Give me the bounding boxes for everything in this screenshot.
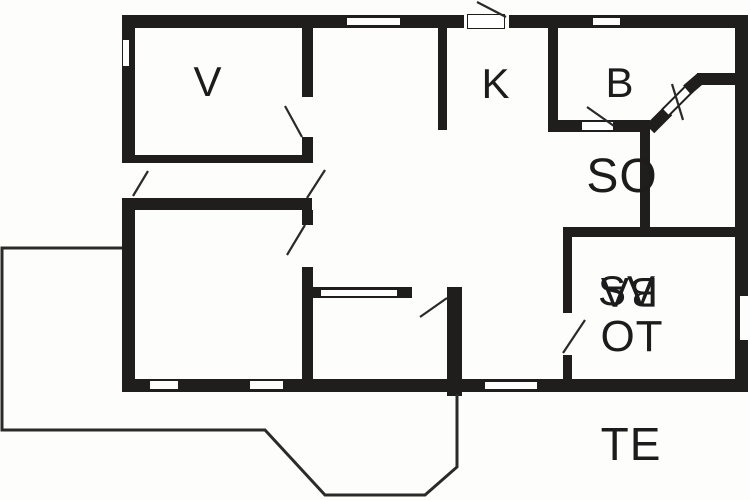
room-label-v: V: [193, 61, 222, 103]
kitchen-divider-wall: [438, 15, 447, 130]
exterior-wall-bottom: [122, 379, 748, 392]
swing-angled-door: [672, 84, 683, 120]
window-left-wall: [123, 40, 129, 66]
so-room-top-wall: [697, 73, 748, 85]
terrace-label: TE: [601, 421, 662, 467]
window-mid-room-wall: [320, 289, 398, 297]
exterior-wall-top: [122, 15, 748, 28]
mid-room-right-wall: [447, 287, 462, 396]
room2-right-wall-lower: [302, 267, 313, 392]
main-entrance-door-leaf: [467, 14, 505, 29]
svot-room-top-wall: [563, 227, 748, 237]
window-bottom-wall-2: [250, 381, 283, 389]
window-top-wall-left: [347, 18, 400, 25]
angled-door-leaf-fill: [666, 89, 689, 112]
bathroom-door-leaf: [581, 121, 614, 131]
room-label-ba-overlay-rotated: BA: [600, 271, 658, 313]
window-top-wall-right: [593, 18, 620, 25]
window-bottom-wall-1: [150, 381, 178, 389]
swing-room-v-door: [285, 106, 302, 137]
room-v-right-wall-upper: [302, 15, 313, 97]
bathroom-left-wall: [548, 15, 558, 132]
corridor-bottom-wall: [122, 198, 312, 210]
window-bottom-wall-3: [484, 381, 538, 390]
side-entrance-door-gap: [122, 163, 135, 198]
room-label-so: SO: [586, 153, 657, 201]
floor-plan: V K B SO SV BA OT TE: [0, 0, 750, 500]
swing-mid-room-door: [420, 298, 447, 317]
corridor-top-wall: [122, 155, 312, 163]
room-label-b: B: [605, 62, 634, 104]
svot-room-left-wall-lower: [563, 355, 572, 392]
angled-wall-lower-segment: [650, 111, 668, 129]
svot-room-left-wall-upper: [563, 227, 572, 313]
room-label-ot: OT: [600, 315, 663, 359]
room-label-k: K: [481, 63, 510, 105]
window-right-wall: [740, 296, 748, 340]
swing-svot-door: [563, 320, 585, 353]
swing-room2-door: [287, 225, 305, 255]
room2-right-wall-upper: [302, 210, 313, 225]
swing-corridor-door: [307, 170, 325, 198]
swing-side-entrance: [133, 171, 148, 196]
angled-door-leaf-outline: [665, 88, 690, 113]
terrace-outline: [2, 248, 457, 495]
